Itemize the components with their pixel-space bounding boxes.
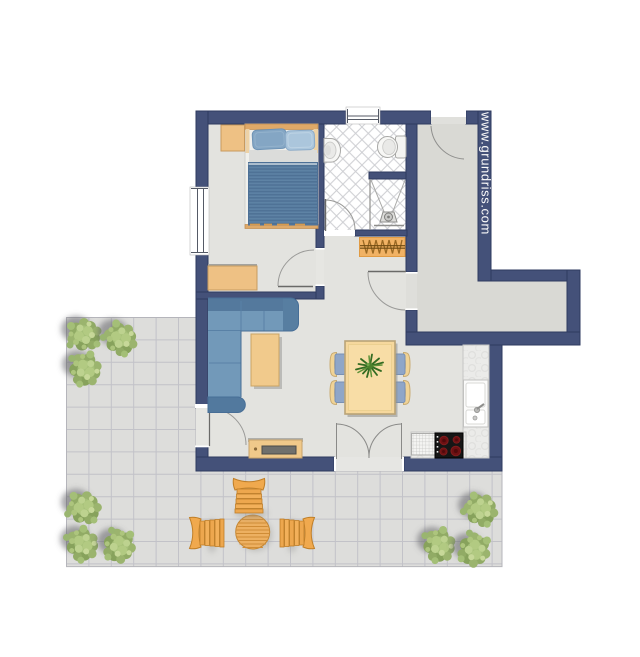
svg-text:www.grundriss.com: www.grundriss.com	[479, 111, 494, 235]
